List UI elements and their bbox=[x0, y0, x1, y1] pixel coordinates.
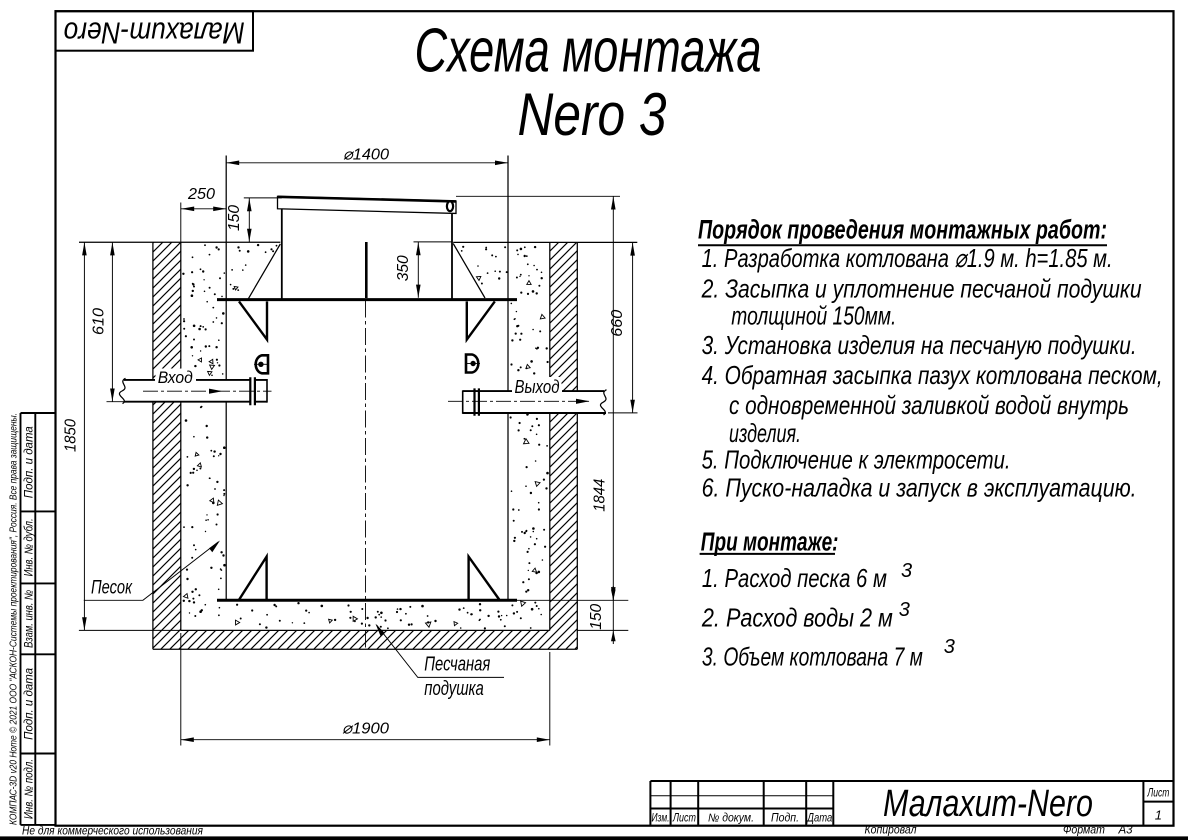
svg-text:Выход: Выход bbox=[515, 377, 560, 397]
svg-text:Схема монтажа: Схема монтажа bbox=[415, 17, 762, 86]
svg-text:Подп.: Подп. bbox=[771, 813, 799, 825]
svg-text:⌀1900: ⌀1900 bbox=[342, 721, 389, 738]
svg-text:350: 350 bbox=[395, 255, 412, 281]
svg-text:1. Расход песка 6 м: 1. Расход песка 6 м bbox=[702, 563, 887, 593]
svg-text:3: 3 bbox=[899, 599, 910, 621]
svg-text:изделия.: изделия. bbox=[729, 418, 801, 448]
svg-text:2. Расход воды 2 м: 2. Расход воды 2 м bbox=[701, 602, 893, 632]
svg-text:Песчаная: Песчаная bbox=[424, 654, 490, 676]
svg-text:№ докум.: № докум. bbox=[708, 813, 754, 825]
svg-text:Копировал: Копировал bbox=[865, 825, 917, 837]
svg-text:2. Засыпка и уплотнение песчан: 2. Засыпка и уплотнение песчаной подушки bbox=[701, 273, 1142, 303]
svg-text:Малахит-Nero: Малахит-Nero bbox=[64, 15, 245, 50]
svg-text:250: 250 bbox=[187, 186, 215, 203]
svg-text:⌀1400: ⌀1400 bbox=[343, 147, 389, 164]
svg-text:Изм.: Изм. bbox=[652, 813, 670, 825]
svg-text:Nero 3: Nero 3 bbox=[518, 81, 667, 148]
svg-text:660: 660 bbox=[609, 310, 626, 337]
svg-text:Песок: Песок bbox=[91, 577, 133, 599]
svg-text:подушка: подушка bbox=[424, 678, 484, 700]
svg-text:Лист: Лист bbox=[1147, 788, 1170, 800]
svg-text:Подп. и дата: Подп. и дата bbox=[24, 668, 36, 740]
svg-text:При монтаже:: При монтаже: bbox=[701, 529, 839, 557]
svg-text:1844: 1844 bbox=[592, 479, 609, 512]
svg-text:Лист: Лист bbox=[672, 813, 696, 825]
svg-text:с одновременной заливкой водой: с одновременной заливкой водой внутрь bbox=[729, 390, 1129, 420]
svg-text:610: 610 bbox=[91, 308, 108, 335]
svg-text:А3: А3 bbox=[1117, 825, 1133, 837]
svg-text:3: 3 bbox=[901, 560, 912, 582]
svg-text:3. Установка изделия на песчан: 3. Установка изделия на песчаную подушки… bbox=[702, 330, 1137, 360]
svg-text:150: 150 bbox=[588, 604, 605, 630]
svg-text:Не для коммерческого использов: Не для коммерческого использования bbox=[22, 826, 203, 838]
svg-text:толщиной 150мм.: толщиной 150мм. bbox=[731, 301, 896, 331]
svg-text:Взам. инв. №: Взам. инв. № bbox=[24, 589, 36, 647]
svg-text:3: 3 bbox=[944, 636, 955, 658]
svg-text:Подп. и дата: Подп. и дата bbox=[24, 426, 36, 498]
svg-text:Дата: Дата bbox=[806, 813, 833, 825]
svg-text:5. Подключение к электросети.: 5. Подключение к электросети. bbox=[702, 445, 1011, 475]
svg-text:4. Обратная засыпка пазух котл: 4. Обратная засыпка пазух котлована песк… bbox=[702, 360, 1163, 390]
svg-text:3. Объем котлована 7 м: 3. Объем котлована 7 м bbox=[702, 641, 923, 671]
svg-text:1850: 1850 bbox=[62, 419, 79, 452]
svg-text:150: 150 bbox=[226, 205, 243, 231]
svg-text:6. Пуско-наладка и запуск в эк: 6. Пуско-наладка и запуск в эксплуатацию… bbox=[702, 473, 1137, 503]
svg-text:Инв. № дубл.: Инв. № дубл. bbox=[24, 518, 36, 576]
svg-text:КОМПАС-3D v20 Home © 2021 ООО: КОМПАС-3D v20 Home © 2021 ООО "АСКОН-Сис… bbox=[8, 413, 20, 825]
svg-text:Формат: Формат bbox=[1063, 825, 1105, 837]
svg-text:1. Разработка котлована ⌀1.9 м: 1. Разработка котлована ⌀1.9 м. h=1.85 м… bbox=[702, 243, 1113, 273]
svg-text:Малахит-Nero: Малахит-Nero bbox=[883, 783, 1093, 825]
svg-text:Инв. № подл.: Инв. № подл. bbox=[24, 759, 36, 819]
svg-text:Вход: Вход bbox=[158, 369, 193, 387]
svg-text:1: 1 bbox=[1155, 808, 1162, 823]
svg-text:Порядок проведения монтажных р: Порядок проведения монтажных работ: bbox=[698, 215, 1107, 245]
